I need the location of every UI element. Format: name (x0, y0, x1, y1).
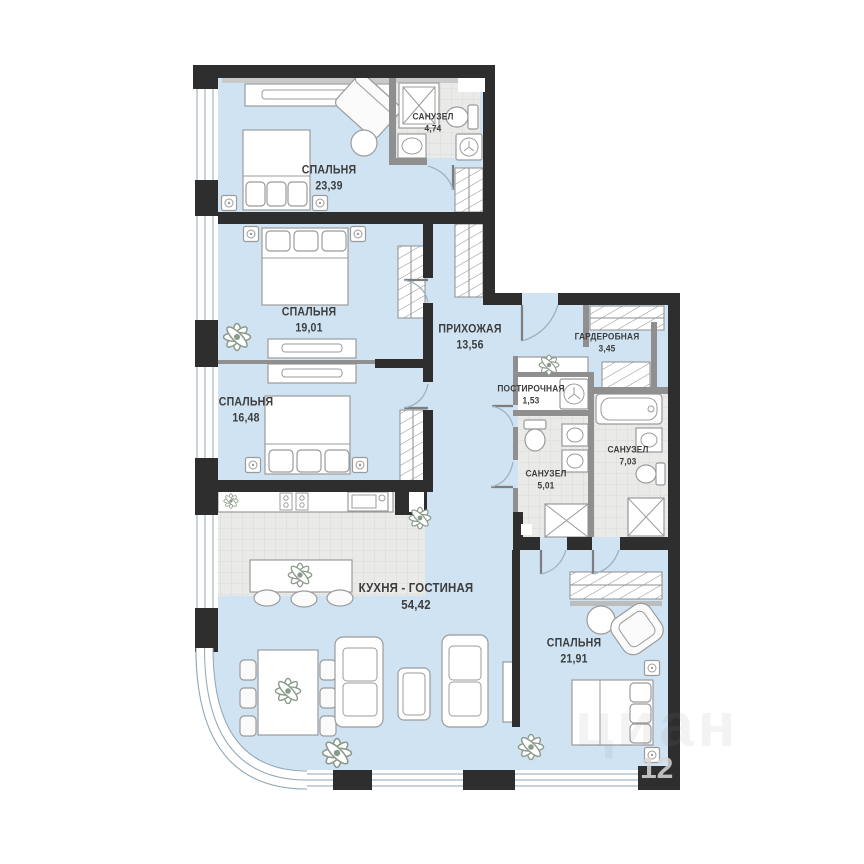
room-name: СПАЛЬНЯ (282, 304, 336, 320)
room-label-bedroom-4: СПАЛЬНЯ 21,91 (547, 635, 601, 666)
room-name: САНУЗЕЛ (525, 469, 566, 481)
room-area: 4,74 (412, 124, 453, 136)
room-name: ПОСТИРОЧНАЯ (497, 384, 564, 396)
room-label-bathroom-2: САНУЗЕЛ 5,01 (525, 469, 566, 494)
room-label-wardrobe-room: ГАРДЕРОБНАЯ 3,45 (575, 332, 640, 357)
room-area: 7,03 (607, 457, 648, 469)
room-area: 5,01 (525, 481, 566, 493)
watermark-number: 12 (640, 752, 673, 786)
room-name: ГАРДЕРОБНАЯ (575, 332, 640, 344)
room-label-bedroom-1: СПАЛЬНЯ 23,39 (302, 162, 356, 193)
room-name: САНУЗЕЛ (412, 112, 453, 124)
room-area: 13,56 (438, 337, 501, 353)
room-area: 16,48 (219, 410, 273, 426)
room-name: СПАЛЬНЯ (302, 162, 356, 178)
room-area: 21,91 (547, 651, 601, 667)
room-name: СПАЛЬНЯ (219, 394, 273, 410)
room-label-hallway: ПРИХОЖАЯ 13,56 (438, 321, 501, 352)
room-label-bathroom-3: САНУЗЕЛ 7,03 (607, 445, 648, 470)
room-area: 19,01 (282, 320, 336, 336)
room-area: 23,39 (302, 178, 356, 194)
room-area: 3,45 (575, 344, 640, 356)
room-area: 54,42 (359, 597, 474, 614)
room-name: ПРИХОЖАЯ (438, 321, 501, 337)
room-area: 1,53 (497, 396, 564, 408)
room-label-bedroom-2: СПАЛЬНЯ 19,01 (282, 304, 336, 335)
room-name: КУХНЯ - ГОСТИНАЯ (359, 580, 474, 597)
hallway-wardrobe (455, 224, 483, 297)
room-label-kitchen-living: КУХНЯ - ГОСТИНАЯ 54,42 (359, 580, 474, 614)
floor-plan-page: СПАЛЬНЯ 23,39 САНУЗЕЛ 4,74 СПАЛЬНЯ 19,01… (0, 0, 864, 864)
room-name: САНУЗЕЛ (607, 445, 648, 457)
room-label-bedroom-3: СПАЛЬНЯ 16,48 (219, 394, 273, 425)
room-label-laundry: ПОСТИРОЧНАЯ 1,53 (497, 384, 564, 409)
room-name: СПАЛЬНЯ (547, 635, 601, 651)
watermark-logo: циан (575, 690, 739, 761)
room-label-bathroom-1: САНУЗЕЛ 4,74 (412, 112, 453, 137)
